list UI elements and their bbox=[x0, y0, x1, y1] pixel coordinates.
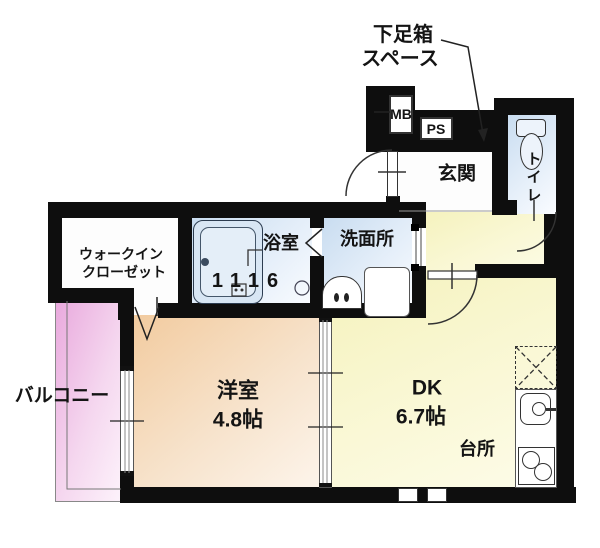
floor-plan: 下足箱 スペース MB PS 玄関 トイレ 洗面所 浴室 1116 ウォークイン… bbox=[0, 0, 600, 548]
wall-segment bbox=[475, 264, 557, 278]
label-entrance: 玄関 bbox=[438, 165, 476, 184]
label-bathroom: 浴室 bbox=[263, 234, 299, 252]
label-wic-line2: クローゼット bbox=[82, 265, 166, 279]
annotation-shoebox-line1: 下足箱 bbox=[373, 25, 433, 45]
wall-segment bbox=[492, 200, 517, 215]
wall-vent bbox=[398, 488, 418, 502]
wall-segment bbox=[120, 303, 134, 369]
label-wic-line1: ウォークイン bbox=[79, 247, 163, 261]
label-balcony: バルコニー bbox=[15, 387, 110, 406]
label-toilet: トイレ bbox=[526, 151, 541, 205]
annotation-shoebox-line2: スペース bbox=[361, 49, 439, 69]
bath-faucet-icon bbox=[201, 258, 209, 266]
sliding-door-cap bbox=[319, 318, 332, 322]
vanity-knob bbox=[334, 293, 339, 302]
wall-segment bbox=[310, 216, 324, 228]
label-bathroom-size: 1116 bbox=[212, 271, 286, 291]
washing-machine-space bbox=[364, 267, 410, 317]
wall-segment bbox=[556, 98, 574, 503]
washroom-sliding-door bbox=[412, 228, 426, 266]
label-dk: DK bbox=[412, 378, 442, 399]
entrance-door-leaf bbox=[387, 151, 398, 197]
western-dk-sliding-door bbox=[319, 318, 332, 488]
balcony-window-cap bbox=[120, 366, 134, 371]
label-mb: MB bbox=[390, 107, 412, 121]
wall-segment bbox=[412, 216, 426, 228]
refrigerator-space bbox=[515, 346, 557, 389]
label-kitchen: 台所 bbox=[459, 440, 495, 458]
wall-segment bbox=[412, 266, 426, 318]
label-washroom: 洗面所 bbox=[340, 230, 394, 248]
wall-segment bbox=[120, 487, 576, 503]
wall-segment bbox=[386, 196, 400, 218]
kitchen-faucet-stub bbox=[546, 408, 556, 411]
stove-burner bbox=[534, 463, 552, 481]
wall-segment bbox=[178, 216, 192, 304]
kitchen-faucet-icon bbox=[532, 402, 546, 416]
balcony-window bbox=[120, 368, 134, 475]
vanity-sink-icon bbox=[322, 276, 362, 309]
label-western-size: 4.8帖 bbox=[213, 410, 263, 431]
label-ps: PS bbox=[427, 122, 446, 136]
vanity-knob bbox=[344, 293, 349, 302]
wall-segment bbox=[48, 202, 426, 218]
room-western bbox=[133, 315, 323, 490]
label-dk-size: 6.7帖 bbox=[396, 407, 446, 428]
balcony-window-cap bbox=[120, 471, 134, 476]
label-western-room: 洋室 bbox=[217, 381, 259, 402]
wall-segment bbox=[494, 98, 574, 115]
wall-vent bbox=[427, 488, 447, 502]
sliding-door-cap bbox=[319, 483, 332, 487]
